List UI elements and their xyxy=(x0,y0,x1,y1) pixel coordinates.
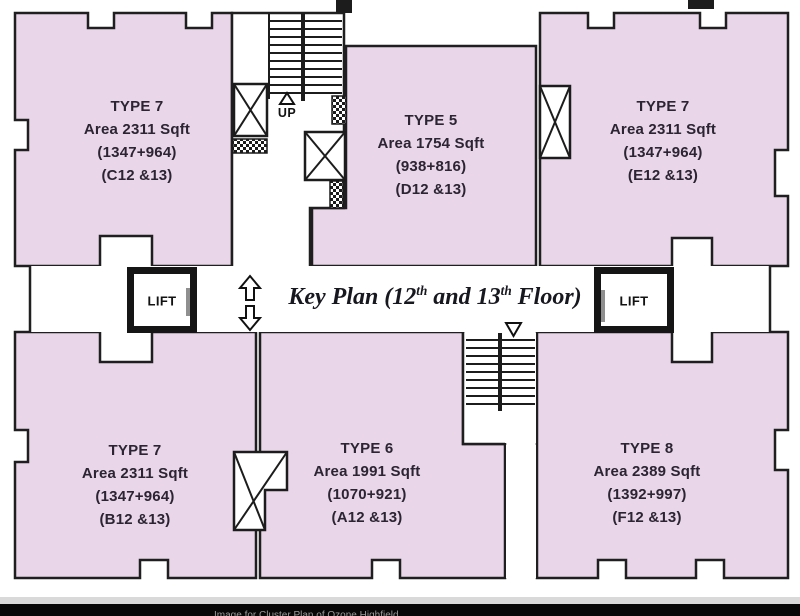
unit-area: Area 2311 Sqft xyxy=(84,118,190,141)
caption-band: Image for Cluster Plan of Ozone Highfiel… xyxy=(0,604,800,616)
unit-breakup: (1392+997) xyxy=(593,483,700,506)
caption-text: Image for Cluster Plan of Ozone Highfiel… xyxy=(0,604,800,616)
unit-type: TYPE 8 xyxy=(593,437,700,460)
unit-flats: (D12 &13) xyxy=(377,178,484,201)
unit-area: Area 1754 Sqft xyxy=(377,132,484,155)
unit-label-d12: TYPE 5 Area 1754 Sqft (938+816) (D12 &13… xyxy=(377,109,484,201)
stair-bottom-divider xyxy=(498,333,502,411)
key-plan-title-sup2: th xyxy=(501,283,512,298)
unit-breakup: (1347+964) xyxy=(84,141,190,164)
unit-label-c12: TYPE 7 Area 2311 Sqft (1347+964) (C12 &1… xyxy=(84,95,190,187)
corridor-strip-bottom xyxy=(506,445,536,578)
unit-area: Area 2389 Sqft xyxy=(593,460,700,483)
unit-label-f12: TYPE 8 Area 2389 Sqft (1392+997) (F12 &1… xyxy=(593,437,700,529)
stair-top-divider xyxy=(301,13,305,101)
unit-flats: (E12 &13) xyxy=(610,164,716,187)
stair-up-label: UP xyxy=(278,106,296,120)
lift-left-label: LIFT xyxy=(147,294,176,309)
lift-left-door xyxy=(186,288,190,316)
bottom-divider-strip xyxy=(0,597,800,604)
unit-breakup: (938+816) xyxy=(377,155,484,178)
unit-type: TYPE 7 xyxy=(82,439,188,462)
unit-type: TYPE 7 xyxy=(610,95,716,118)
unit-area: Area 1991 Sqft xyxy=(313,460,420,483)
wall-tab-top-center xyxy=(336,0,352,13)
key-plan-title: Key Plan (12th and 13th Floor) xyxy=(288,283,581,311)
unit-area: Area 2311 Sqft xyxy=(610,118,716,141)
floor-plan-page: TYPE 7 Area 2311 Sqft (1347+964) (C12 &1… xyxy=(0,0,800,616)
unit-label-a12: TYPE 6 Area 1991 Sqft (1070+921) (A12 &1… xyxy=(313,437,420,529)
unit-flats: (A12 &13) xyxy=(313,506,420,529)
unit-breakup: (1347+964) xyxy=(82,485,188,508)
unit-breakup: (1070+921) xyxy=(313,483,420,506)
unit-label-b12: TYPE 7 Area 2311 Sqft (1347+964) (B12 &1… xyxy=(82,439,188,531)
unit-type: TYPE 7 xyxy=(84,95,190,118)
wall-tab-top-right xyxy=(688,0,714,9)
unit-breakup: (1347+964) xyxy=(610,141,716,164)
lift-right-door xyxy=(601,290,605,322)
unit-flats: (C12 &13) xyxy=(84,164,190,187)
key-plan-title-pre: Key Plan (12 xyxy=(288,284,416,310)
unit-flats: (B12 &13) xyxy=(82,508,188,531)
unit-type: TYPE 5 xyxy=(377,109,484,132)
unit-area: Area 2311 Sqft xyxy=(82,462,188,485)
unit-type: TYPE 6 xyxy=(313,437,420,460)
lift-right-label: LIFT xyxy=(619,294,648,309)
key-plan-title-post: Floor) xyxy=(512,284,582,310)
unit-label-e12: TYPE 7 Area 2311 Sqft (1347+964) (E12 &1… xyxy=(610,95,716,187)
key-plan-title-sup1: th xyxy=(416,283,427,298)
key-plan-title-mid: and 13 xyxy=(427,284,500,310)
unit-flats: (F12 &13) xyxy=(593,506,700,529)
